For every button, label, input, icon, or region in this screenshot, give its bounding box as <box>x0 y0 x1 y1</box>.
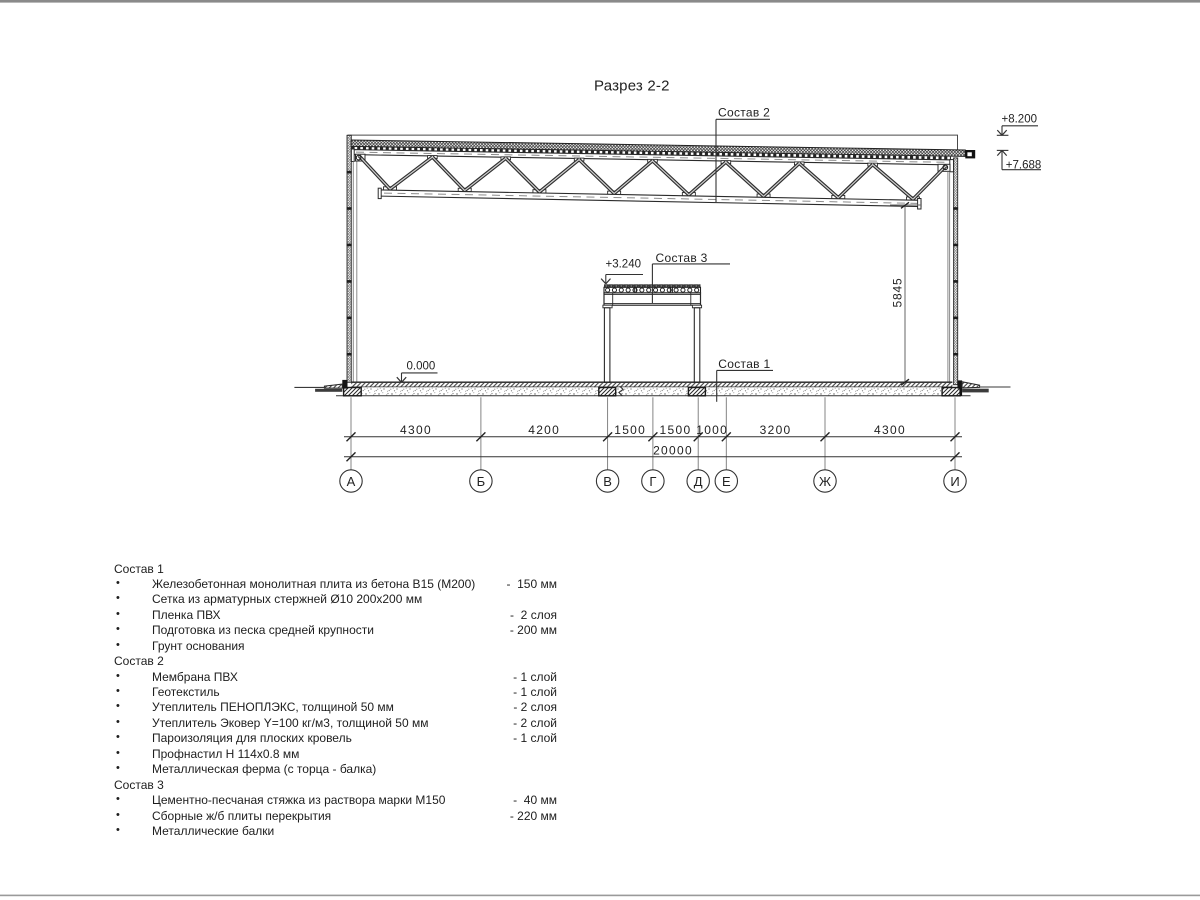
svg-text:1500: 1500 <box>614 423 646 437</box>
svg-text:Состав 2: Состав 2 <box>718 105 770 119</box>
svg-text:+7.688: +7.688 <box>1006 159 1042 171</box>
svg-text:Е: Е <box>722 474 731 489</box>
svg-text:Разрез 2-2: Разрез 2-2 <box>594 78 670 95</box>
svg-text:И: И <box>950 474 959 489</box>
svg-text:4300: 4300 <box>400 423 432 437</box>
svg-text:Ж: Ж <box>819 474 831 489</box>
svg-text:А: А <box>347 474 356 489</box>
svg-text:3200: 3200 <box>760 423 792 437</box>
svg-text:1500: 1500 <box>660 423 692 437</box>
svg-text:Состав 3: Состав 3 <box>656 251 708 265</box>
svg-text:Состав 1: Состав 1 <box>718 357 770 371</box>
svg-text:Г: Г <box>649 474 656 489</box>
svg-text:4300: 4300 <box>874 423 906 437</box>
svg-text:В: В <box>603 474 612 489</box>
svg-text:+8.200: +8.200 <box>1002 113 1038 125</box>
svg-text:Д: Д <box>694 474 703 489</box>
svg-text:5845: 5845 <box>891 278 905 308</box>
svg-text:Б: Б <box>477 474 486 489</box>
svg-text:20000: 20000 <box>653 443 693 457</box>
svg-text:4200: 4200 <box>528 423 560 437</box>
svg-text:+3.240: +3.240 <box>606 259 642 271</box>
svg-text:1000: 1000 <box>696 423 728 437</box>
svg-text:0.000: 0.000 <box>407 360 436 372</box>
